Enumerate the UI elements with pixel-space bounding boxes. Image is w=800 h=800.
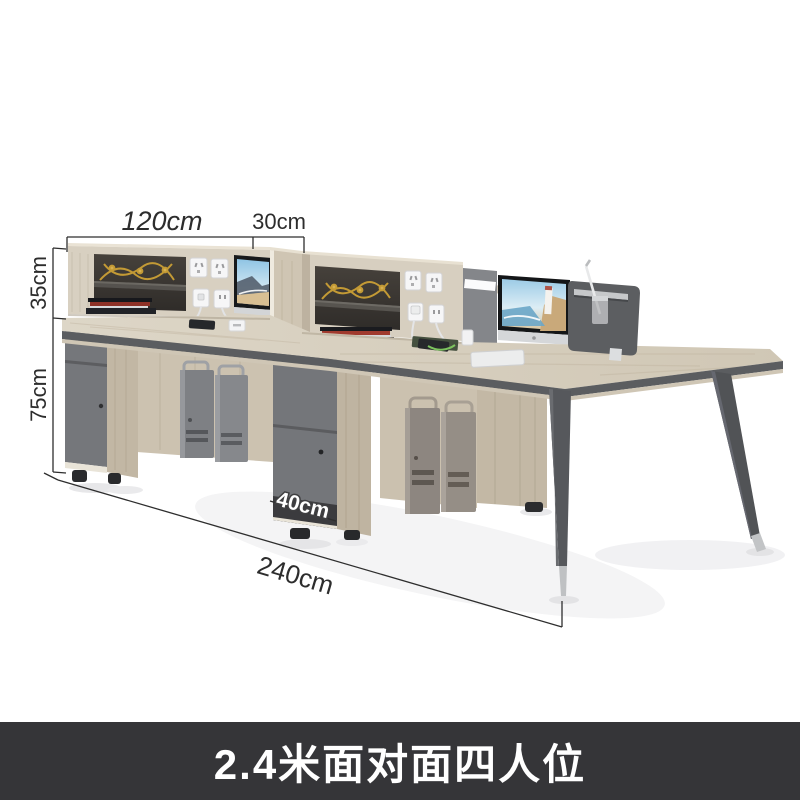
caption-text: 2.4米面对面四人位: [214, 731, 586, 792]
cabinet-side-panel: [337, 358, 371, 536]
apple-logo: [532, 336, 536, 340]
pen-cup: [462, 330, 473, 345]
cpu-tower: [441, 402, 476, 512]
hutch2-compartment: [315, 266, 400, 330]
cpu-tower: [215, 366, 248, 462]
socket-outlet: [426, 273, 442, 292]
dim-label-hutch-width: 120cm: [121, 206, 202, 236]
product-image: 120cm 30cm 35cm 75cm 240cm 40cm 2.4米面对面四…: [0, 0, 800, 800]
caption-bar: 2.4米面对面四人位: [0, 722, 800, 800]
socket-outlet: [408, 303, 423, 321]
socket-outlet: [193, 289, 209, 307]
cabinet-side-panel: [107, 334, 138, 478]
cabinet-front: [65, 330, 107, 467]
monitor-module1: [234, 255, 272, 321]
pedestal-cabinet-left: [65, 330, 138, 484]
tablet: [471, 350, 525, 368]
divider-clamp: [609, 348, 622, 361]
smartphone: [189, 319, 216, 330]
socket-outlet: [405, 271, 421, 290]
socket-outlet: [214, 290, 230, 308]
dim-label-hutch-depth: 30cm: [252, 209, 306, 234]
cpu-tower: [180, 362, 214, 458]
keyhole: [99, 404, 103, 408]
socket-outlet: [190, 258, 207, 277]
workstation-scene: 120cm 30cm 35cm 75cm 240cm 40cm: [0, 0, 800, 800]
dim-label-hutch-height: 35cm: [26, 256, 51, 310]
socket-outlet: [429, 305, 444, 323]
dim-label-desk-height: 75cm: [26, 368, 51, 422]
end-divider-screen: [568, 260, 640, 361]
keyhole: [319, 450, 324, 455]
left-dimension-bracket: [53, 248, 66, 473]
cpu-tower: [405, 398, 440, 514]
socket-outlet: [211, 259, 228, 278]
book-stack: [86, 298, 156, 314]
